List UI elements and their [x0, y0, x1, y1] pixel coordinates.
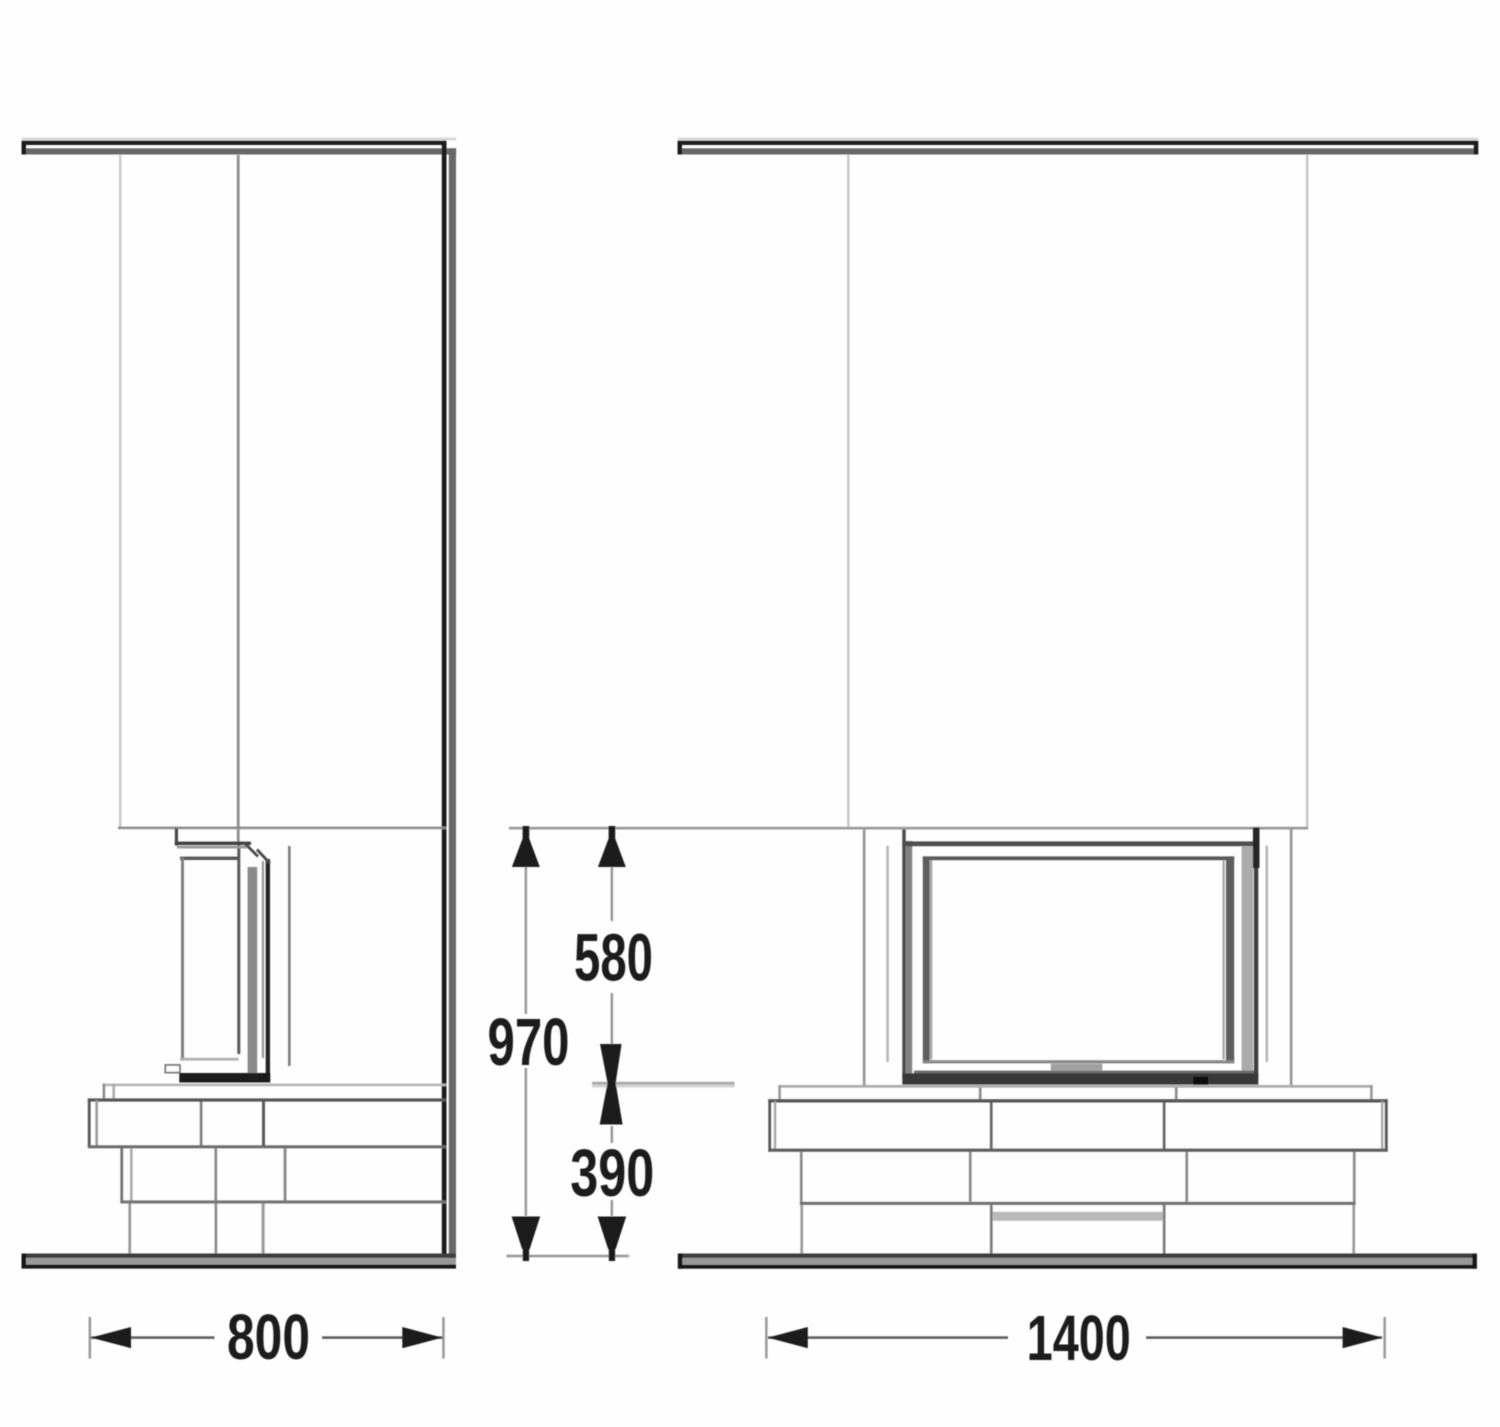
svg-text:800: 800 — [227, 1301, 310, 1373]
svg-text:1400: 1400 — [1027, 1302, 1131, 1374]
svg-text:580: 580 — [574, 920, 653, 995]
svg-text:390: 390 — [570, 1136, 654, 1211]
svg-text:970: 970 — [488, 1005, 570, 1080]
